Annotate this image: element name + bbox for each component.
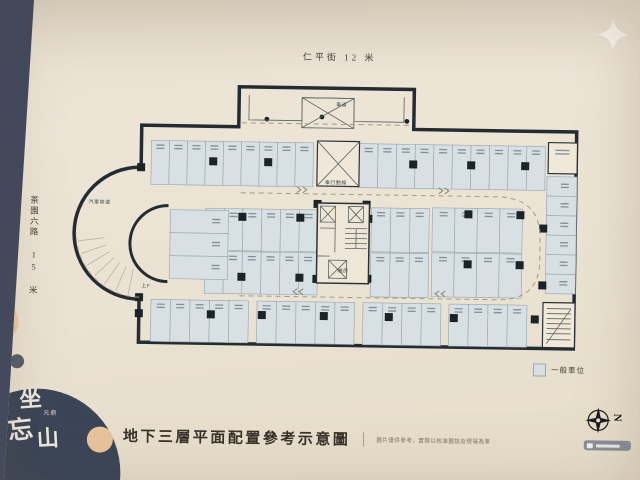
- parking-stall: [334, 302, 354, 344]
- legend-swatch: [533, 363, 546, 376]
- structural-column: [385, 313, 393, 321]
- parking-stall: [362, 303, 382, 345]
- structural-column: [464, 210, 472, 218]
- parking-stall: [169, 256, 227, 280]
- parking-stall: [431, 253, 454, 297]
- parking-stall: [295, 302, 315, 344]
- structural-column: [207, 310, 215, 318]
- parking-stall: [170, 210, 228, 234]
- parking-stall: [546, 216, 576, 236]
- parking-stall: [170, 300, 190, 342]
- parking-stall: [371, 208, 391, 252]
- compass-icon: [583, 406, 618, 441]
- parking-stall: [170, 233, 228, 257]
- parking-stall: [546, 235, 576, 255]
- parking-stall: [507, 305, 527, 347]
- structural-column: [516, 261, 524, 269]
- parking-stall: [547, 177, 577, 197]
- ramp-inner-arc: [129, 205, 168, 282]
- watermark-text-blur: [596, 444, 620, 447]
- parking-stall: [545, 255, 575, 275]
- watermark-icon: [587, 443, 593, 448]
- parking-stall: [432, 208, 455, 252]
- parking-stall: [241, 142, 260, 186]
- logo-char-2: 忘: [7, 417, 35, 445]
- parking-stall: [189, 300, 209, 342]
- structural-column: [209, 157, 217, 165]
- structural-column: [137, 163, 145, 171]
- poster-content: 仁平街 12 米 茶園六路 15 米: [0, 0, 640, 480]
- parking-stall: [433, 145, 452, 189]
- structural-column: [238, 213, 246, 221]
- structural-column: [516, 211, 524, 219]
- page-title: 地下三層平面配置參考示意圖: [123, 425, 351, 450]
- structural-column: [464, 260, 472, 268]
- structural-column: [539, 224, 547, 232]
- structural-column: [450, 314, 458, 322]
- structural-column: [521, 162, 529, 170]
- structural-column: [531, 315, 539, 323]
- entry-bay-lines: [249, 95, 404, 122]
- parking-stall: [228, 301, 248, 343]
- ramp-hatch: [78, 237, 134, 294]
- label-ramp-top: 車道: [336, 101, 347, 108]
- title-divider: ｜: [356, 429, 370, 449]
- parking-stall: [261, 209, 280, 251]
- logo-char-3: 山: [36, 427, 59, 450]
- parking-stall: [223, 141, 242, 185]
- parking-stall: [359, 144, 378, 188]
- parking-stall: [499, 254, 522, 298]
- structural-column: [320, 312, 328, 320]
- parking-stall: [468, 304, 488, 346]
- structural-column: [296, 214, 304, 222]
- parking-stall: [370, 253, 390, 297]
- parking-stall: [421, 304, 441, 346]
- parking-stall: [546, 196, 576, 216]
- structural-column: [264, 158, 272, 166]
- structural-column: [135, 309, 143, 317]
- parking-stall: [151, 140, 170, 184]
- floor-plan-drawing: 車道 車行動線 汽車坡道 上P 機房: [0, 0, 640, 480]
- legend-label: 一般車位: [551, 365, 585, 377]
- compass-north-letter: N: [611, 414, 623, 422]
- parking-stall: [409, 253, 429, 297]
- parking-stall: [276, 301, 296, 343]
- parking-stall: [448, 304, 468, 346]
- parking-stall: [261, 252, 280, 294]
- stair-room: [542, 303, 575, 348]
- parking-stall: [382, 303, 402, 345]
- parking-stall: [476, 253, 499, 297]
- label-ramp-left: 汽車坡道: [89, 198, 111, 205]
- structural-column: [538, 281, 546, 289]
- parking-stall: [454, 253, 477, 297]
- parking-stall: [409, 208, 429, 252]
- parking-stall: [277, 142, 296, 186]
- parking-stall: [256, 301, 276, 343]
- label-ramp-up: 上P: [141, 282, 150, 289]
- structural-column-dot: [264, 117, 269, 122]
- structural-column: [258, 311, 266, 319]
- parking-stall: [389, 253, 409, 297]
- logo-char-1: 坐: [19, 388, 43, 412]
- parking-stall: [390, 208, 410, 252]
- parking-stall: [401, 303, 421, 345]
- entry-centerline: [242, 123, 412, 126]
- parking-stall: [279, 252, 298, 294]
- parking-stall: [377, 144, 396, 188]
- corner-room: [548, 143, 577, 174]
- parking-stall: [415, 144, 434, 188]
- structural-column: [237, 273, 245, 281]
- parking-stall: [477, 208, 500, 252]
- poster-paper: 仁平街 12 米 茶園六路 15 米: [0, 0, 640, 480]
- parking-stall: [489, 146, 508, 190]
- photo-watermark-badge: [584, 440, 631, 451]
- parking-stall: [487, 305, 507, 347]
- structural-column: [295, 274, 303, 282]
- structural-column: [409, 160, 417, 168]
- logo-sub-label: 元鼎: [43, 408, 57, 417]
- title-disclaimer: 圖片僅供參考，實際以核准圖說及現場為準: [376, 435, 490, 445]
- parking-stall: [315, 302, 335, 344]
- photo-of-floorplan-poster: 仁平街 12 米 茶園六路 15 米: [0, 0, 640, 480]
- parking-stall: [295, 143, 314, 187]
- parking-stall: [187, 141, 206, 185]
- structural-column-dot: [404, 119, 409, 124]
- structural-column: [467, 161, 475, 169]
- parking-stall: [209, 300, 229, 342]
- parking-stall: [150, 299, 170, 341]
- parking-stall: [545, 274, 575, 294]
- legend: 一般車位: [533, 363, 585, 377]
- parking-stall: [169, 141, 188, 185]
